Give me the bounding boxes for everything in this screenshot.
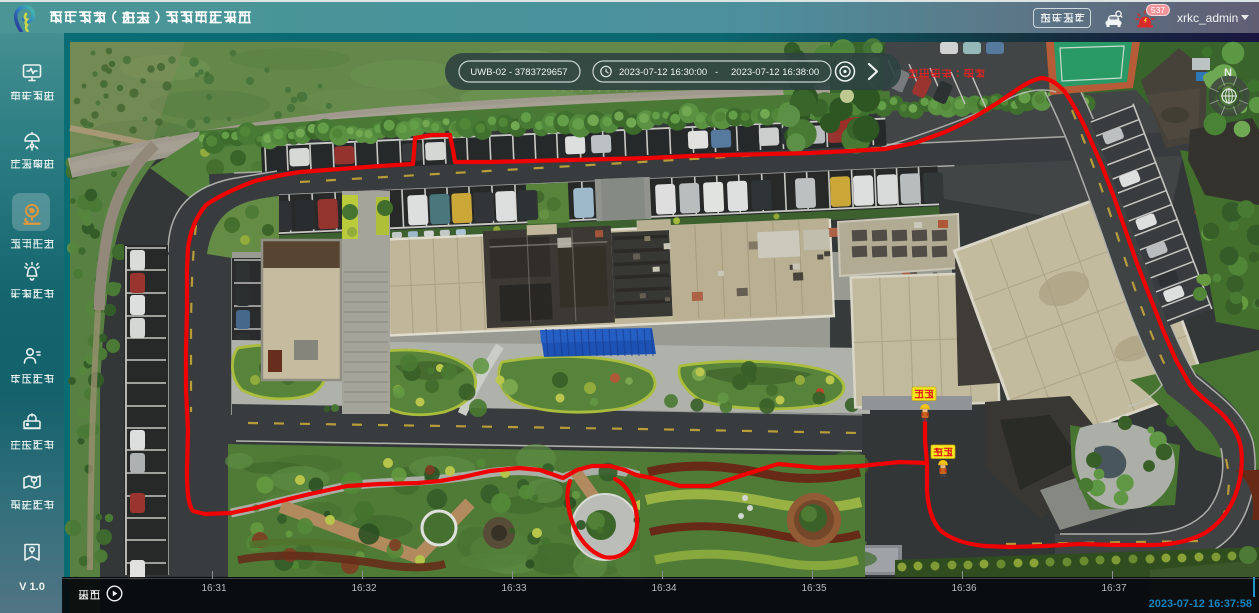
svg-text:2023-07-12 16:30:00: 2023-07-12 16:30:00 (619, 67, 707, 78)
svg-text:N: N (1224, 67, 1232, 79)
svg-text:2023-07-12 16:38:00: 2023-07-12 16:38:00 (731, 67, 819, 78)
svg-text:UWB-02 - 3783729657: UWB-02 - 3783729657 (470, 67, 567, 78)
svg-text:-: - (715, 67, 718, 78)
